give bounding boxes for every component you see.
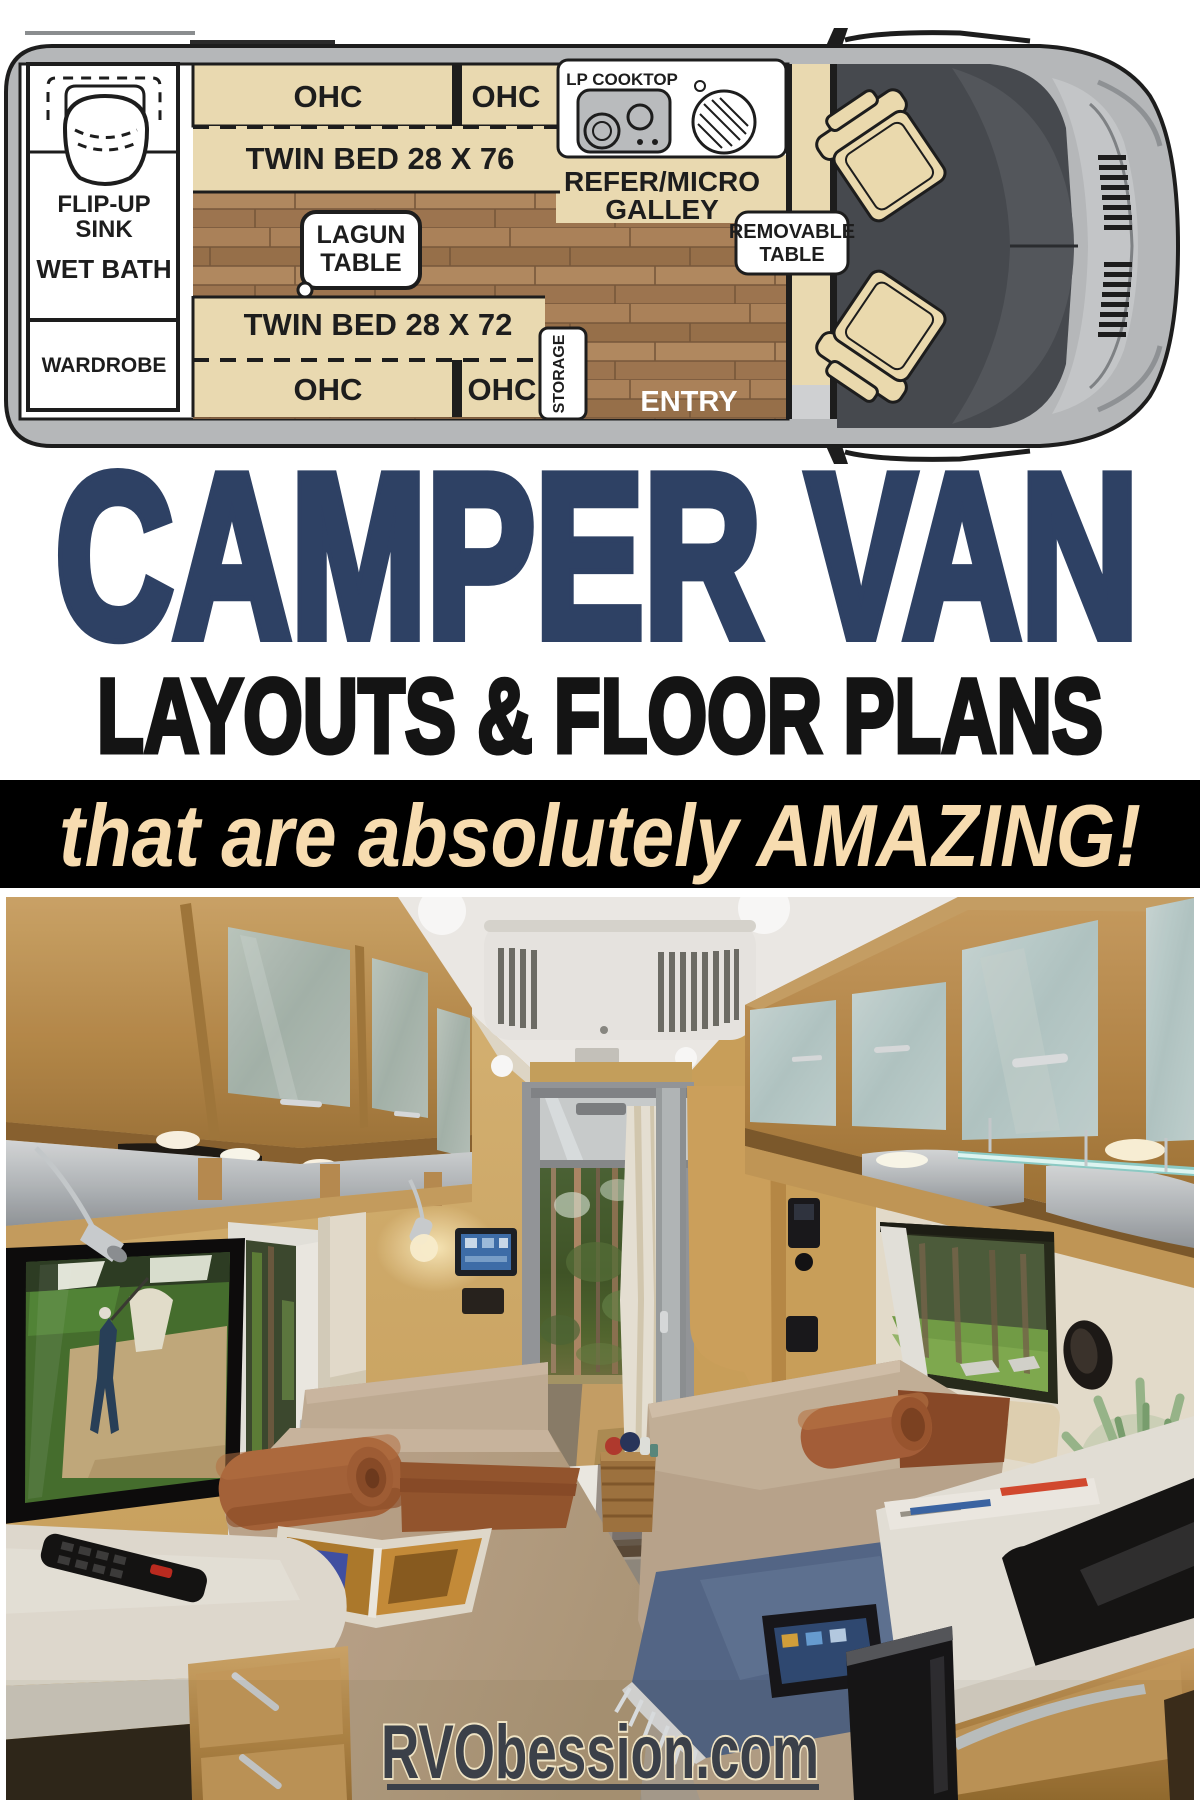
svg-text:STORAGE: STORAGE xyxy=(551,334,568,413)
svg-text:LAGUN: LAGUN xyxy=(317,221,406,249)
svg-text:OHC: OHC xyxy=(468,372,537,407)
svg-text:LAYOUTS & FLOOR PLANS: LAYOUTS & FLOOR PLANS xyxy=(97,658,1103,775)
svg-text:LP COOKTOP: LP COOKTOP xyxy=(566,70,678,89)
svg-text:ENTRY: ENTRY xyxy=(640,386,737,418)
svg-text:TWIN BED 28 X 72: TWIN BED 28 X 72 xyxy=(244,307,513,342)
svg-text:WARDROBE: WARDROBE xyxy=(42,354,167,377)
svg-text:SINK: SINK xyxy=(75,216,133,243)
svg-text:that are absolutely AMAZING!: that are absolutely AMAZING! xyxy=(59,786,1141,885)
svg-text:WET BATH: WET BATH xyxy=(36,254,171,284)
svg-text:REMOVABLE: REMOVABLE xyxy=(729,221,855,243)
svg-text:CAMPER VAN: CAMPER VAN xyxy=(56,455,1139,686)
svg-text:OHC: OHC xyxy=(294,79,363,114)
svg-text:REFER/MICRO: REFER/MICRO xyxy=(564,166,760,197)
svg-text:GALLEY: GALLEY xyxy=(605,194,719,225)
svg-text:TABLE: TABLE xyxy=(320,249,401,277)
svg-text:OHC: OHC xyxy=(294,372,363,407)
svg-text:FLIP-UP: FLIP-UP xyxy=(57,191,150,218)
svg-text:RVObession.com: RVObession.com xyxy=(381,1710,819,1795)
svg-text:OHC: OHC xyxy=(472,79,541,114)
svg-text:TWIN BED 28 X 76: TWIN BED 28 X 76 xyxy=(246,141,515,176)
svg-text:TABLE: TABLE xyxy=(759,244,824,266)
